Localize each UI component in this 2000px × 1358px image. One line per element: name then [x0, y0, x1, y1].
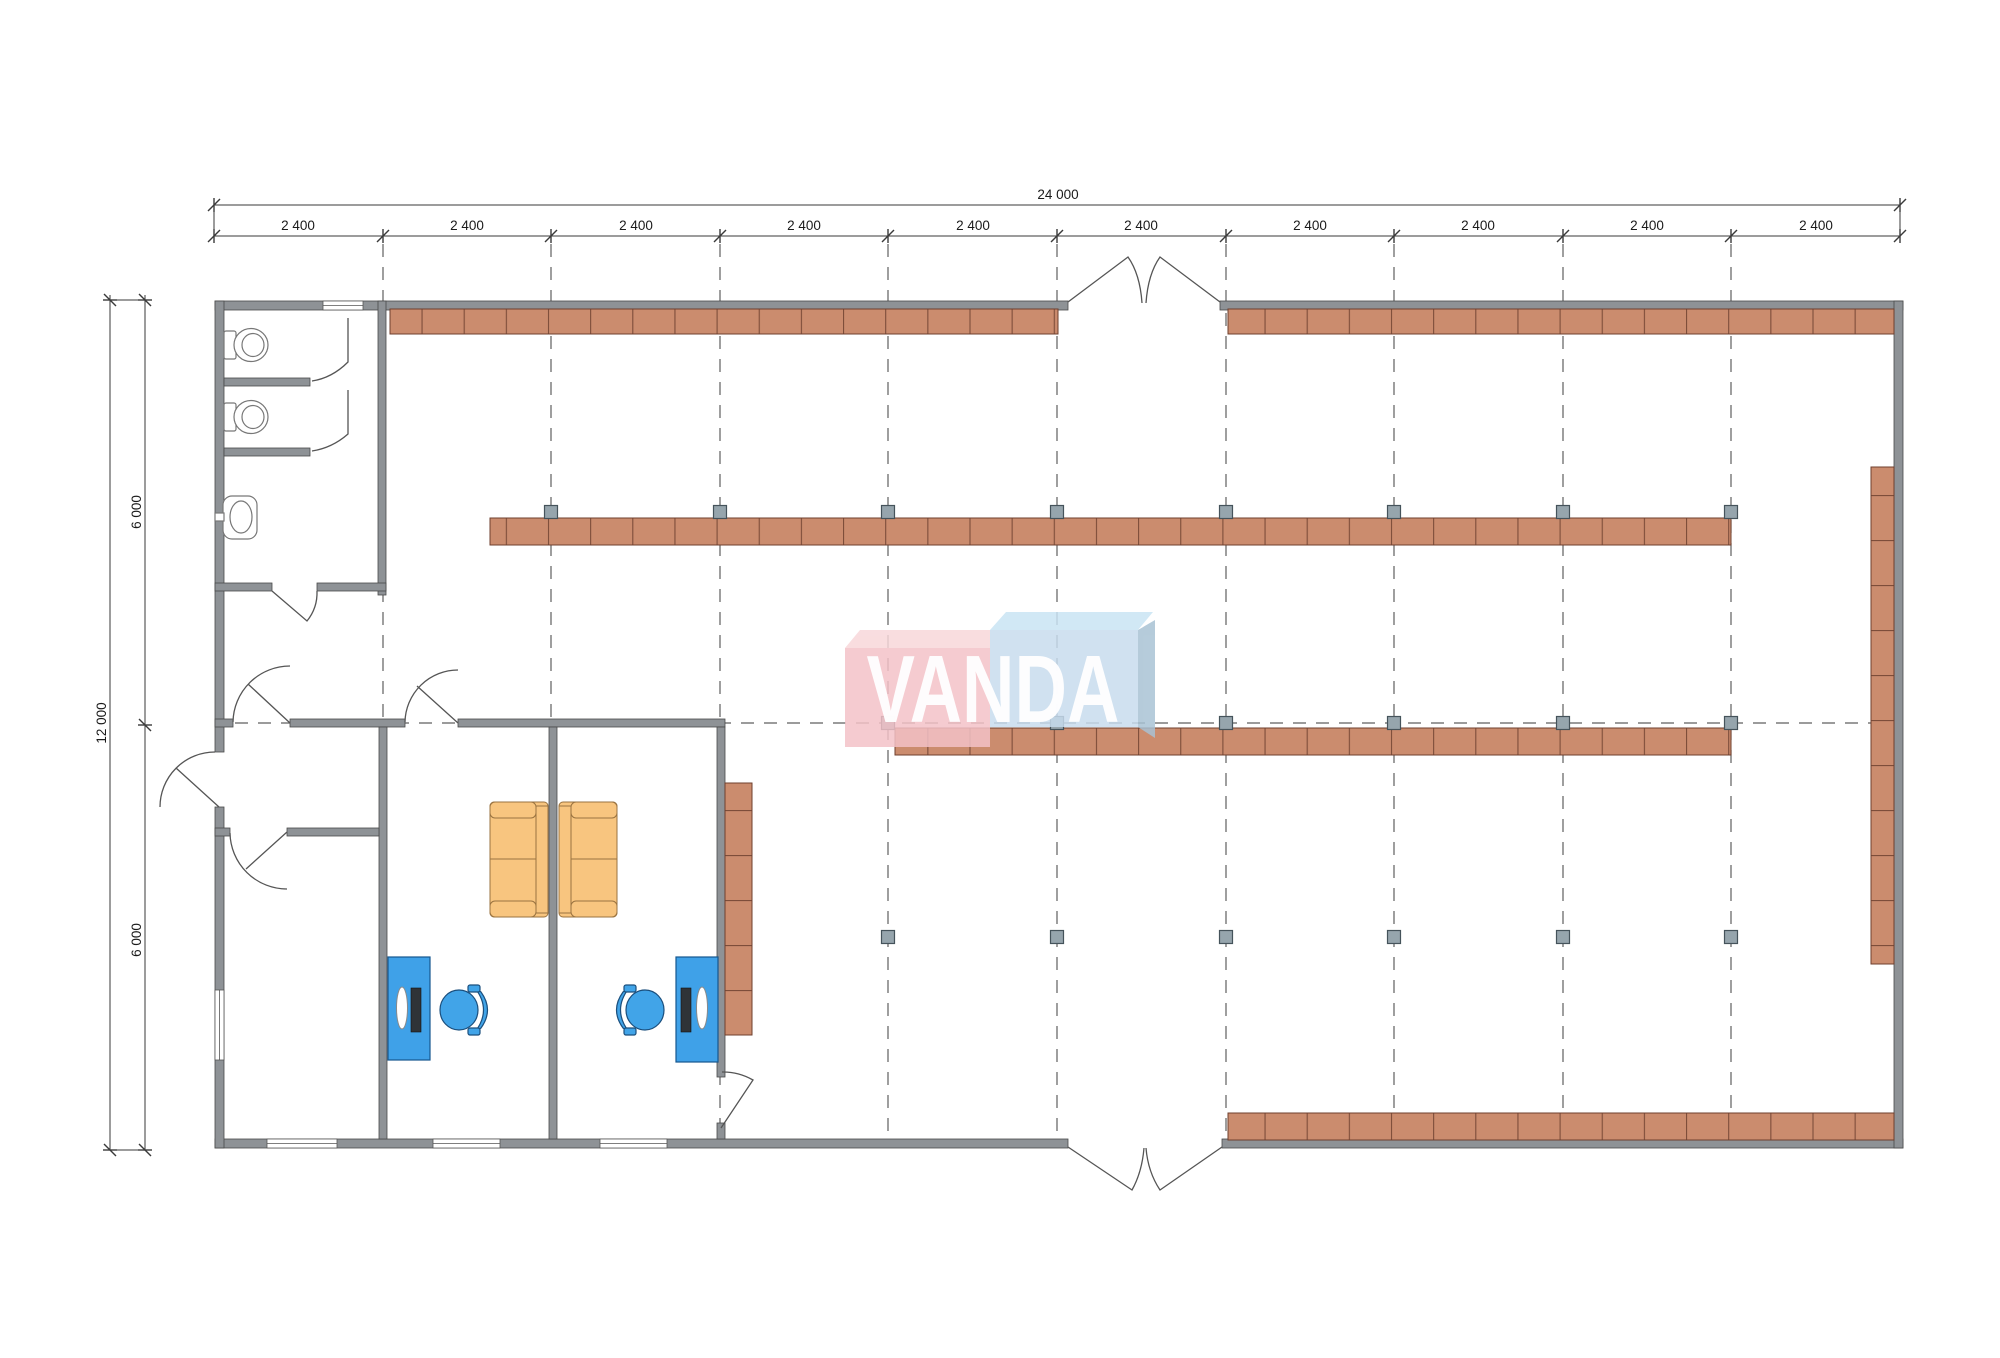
- wall-toilet-bottom-b: [317, 583, 386, 591]
- office-chair-1: [440, 985, 488, 1035]
- dim-label-bay: 2 400: [1799, 218, 1833, 233]
- exterior-wall-left-lower: [215, 807, 224, 1148]
- door-vestibule: [233, 666, 290, 723]
- door-stall-1: [312, 318, 348, 381]
- window-bottom-1: [267, 1139, 337, 1148]
- keyboard-icon: [697, 987, 708, 1029]
- column-marker: [882, 931, 895, 944]
- shelf-office-wall: [725, 783, 752, 1035]
- dim-label-half-height: 6 000: [129, 495, 144, 529]
- wall-office-partition-2: [549, 727, 557, 1139]
- watermark-text: VANDA: [867, 636, 1120, 743]
- dim-label-half-height: 6 000: [129, 923, 144, 957]
- wall-stall-partition-1: [224, 378, 310, 386]
- column-marker: [1725, 506, 1738, 519]
- dim-label-bay: 2 400: [1630, 218, 1664, 233]
- door-room1-inner: [230, 832, 287, 889]
- dim-label-bay: 2 400: [281, 218, 315, 233]
- dim-label-bay: 2 400: [787, 218, 821, 233]
- dim-label-bay: 2 400: [956, 218, 990, 233]
- column-marker: [1220, 717, 1233, 730]
- window-bottom-3: [600, 1139, 667, 1148]
- wall-toilet-bottom-a: [215, 583, 272, 591]
- column-marker: [1557, 717, 1570, 730]
- dimension-left-halves: 6 000 6 000: [129, 294, 152, 1156]
- watermark-blue-box-top: [990, 612, 1153, 630]
- column-marker: [1051, 506, 1064, 519]
- shelf-right-wall: [1871, 467, 1894, 964]
- door-office-exterior: [160, 752, 219, 807]
- wall-stall-partition-2: [224, 448, 310, 456]
- office-chair-2: [617, 985, 665, 1035]
- shelf-bottom-right: [1228, 1113, 1894, 1140]
- wall-office-right-stub: [717, 1123, 725, 1139]
- door-stall-2: [312, 390, 348, 451]
- column-marker: [1388, 717, 1401, 730]
- computer-monitor-icon: [411, 988, 421, 1032]
- dim-label-bay: 2 400: [1124, 218, 1158, 233]
- dim-label-bay: 2 400: [450, 218, 484, 233]
- column-marker: [1220, 931, 1233, 944]
- sofa-right: [559, 802, 617, 917]
- wall-room1-b: [287, 828, 379, 836]
- watermark-blue-box-side: [1138, 620, 1155, 738]
- sofa-left: [490, 802, 548, 917]
- window-bottom-2: [433, 1139, 500, 1148]
- dim-label-overall-width: 24 000: [1037, 187, 1078, 202]
- desk-2: [676, 957, 718, 1062]
- toilet-symbol: [224, 401, 268, 434]
- keyboard-icon: [397, 987, 408, 1029]
- computer-monitor-icon: [681, 988, 691, 1032]
- column-marker: [714, 506, 727, 519]
- shelf-top-right: [1228, 309, 1894, 334]
- wall-office-top-c: [458, 719, 725, 727]
- entrance-door-top: [1068, 257, 1220, 303]
- window-top: [323, 301, 363, 310]
- column-marker: [1388, 931, 1401, 944]
- door-office-to-store: [721, 1072, 753, 1128]
- column-marker: [1557, 931, 1570, 944]
- wall-office-top-a: [215, 719, 233, 727]
- column-marker: [545, 506, 558, 519]
- dim-label-bay: 2 400: [619, 218, 653, 233]
- dim-label-bay: 2 400: [1461, 218, 1495, 233]
- dim-label-bay: 2 400: [1293, 218, 1327, 233]
- wall-room1-a: [215, 828, 230, 836]
- column-marker: [1557, 506, 1570, 519]
- column-marker: [1388, 506, 1401, 519]
- shelf-top-left: [390, 309, 1058, 334]
- window-left: [215, 990, 224, 1060]
- wall-office-partition-1: [379, 727, 387, 1139]
- desk-1: [388, 957, 430, 1060]
- column-marker: [1051, 931, 1064, 944]
- wall-office-top-b: [290, 719, 405, 727]
- column-marker: [1220, 506, 1233, 519]
- door-office-room2: [405, 670, 458, 723]
- column-marker: [882, 506, 895, 519]
- column-marker: [1725, 717, 1738, 730]
- floor-plan-svg: 24 000 2 400 2 400 2 400 2 400 2 400 2 4…: [0, 0, 2000, 1358]
- toilet-symbol: [224, 329, 268, 362]
- dim-label-overall-height: 12 000: [94, 702, 109, 743]
- exterior-wall-right: [1894, 301, 1903, 1148]
- door-toilet-room: [272, 591, 317, 621]
- dimension-top-bays: 2 400 2 400 2 400 2 400 2 400 2 400 2 40…: [208, 218, 1906, 243]
- column-marker: [1725, 931, 1738, 944]
- wall-toilet-right: [378, 301, 386, 595]
- entrance-door-bottom: [1068, 1147, 1222, 1190]
- shelf-row-middle-upper: [490, 518, 1731, 545]
